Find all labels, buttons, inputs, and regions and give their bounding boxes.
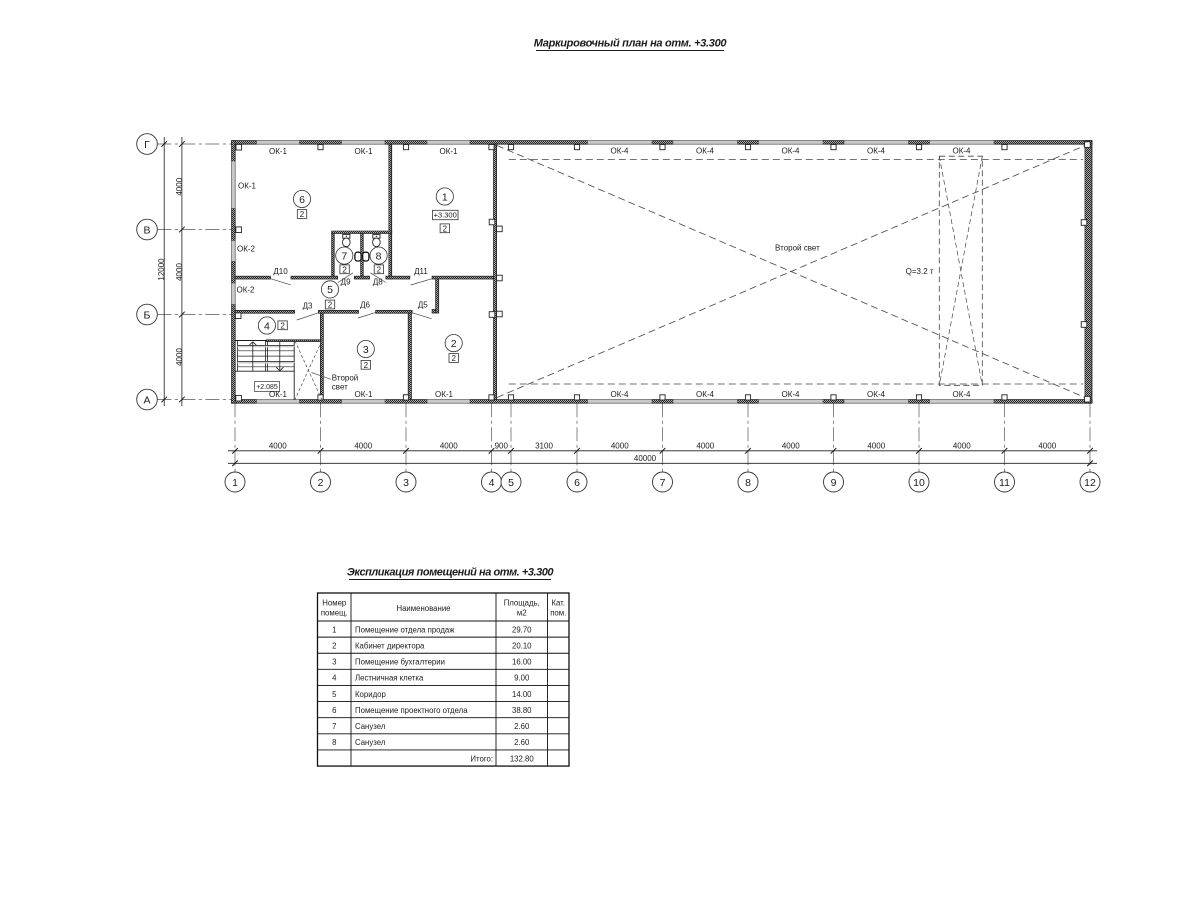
svg-text:6: 6: [299, 194, 305, 206]
svg-text:Наименование: Наименование: [396, 604, 450, 613]
svg-text:Д6: Д6: [360, 301, 370, 310]
svg-text:Итого:: Итого:: [470, 754, 493, 763]
svg-text:4: 4: [332, 674, 337, 683]
svg-text:2: 2: [280, 321, 285, 330]
svg-text:Б: Б: [144, 309, 151, 321]
svg-text:В: В: [143, 224, 150, 236]
svg-text:ОК-4: ОК-4: [782, 390, 801, 399]
svg-text:1: 1: [332, 625, 336, 634]
svg-text:Кат.: Кат.: [551, 599, 565, 608]
svg-text:Второй свет: Второй свет: [775, 244, 820, 253]
svg-text:2: 2: [300, 210, 305, 219]
svg-text:ОК-2: ОК-2: [237, 245, 256, 254]
svg-text:Площадь,: Площадь,: [504, 599, 540, 608]
svg-text:2: 2: [443, 224, 448, 233]
svg-text:4000: 4000: [782, 441, 800, 450]
svg-text:2: 2: [318, 477, 324, 489]
svg-text:4000: 4000: [440, 441, 458, 450]
svg-text:3: 3: [363, 344, 369, 356]
svg-text:Санузел: Санузел: [355, 722, 386, 731]
svg-text:Д8: Д8: [373, 278, 383, 287]
svg-text:ОК-1: ОК-1: [435, 390, 454, 399]
svg-text:2: 2: [328, 301, 333, 310]
svg-text:ОК-4: ОК-4: [867, 146, 886, 155]
svg-text:Кабинет директора: Кабинет директора: [355, 641, 425, 650]
svg-text:Коридор: Коридор: [355, 690, 386, 699]
svg-text:ОК-4: ОК-4: [611, 146, 630, 155]
svg-text:2: 2: [364, 361, 369, 370]
svg-text:5: 5: [508, 477, 514, 489]
svg-text:11: 11: [999, 477, 1010, 489]
svg-text:Д9: Д9: [341, 278, 351, 287]
svg-text:1: 1: [232, 477, 238, 489]
svg-text:2: 2: [377, 265, 382, 274]
svg-text:помещ.: помещ.: [321, 609, 348, 618]
svg-text:3: 3: [332, 658, 336, 667]
svg-text:ОК-4: ОК-4: [953, 146, 972, 155]
svg-text:2.60: 2.60: [514, 722, 530, 731]
svg-text:4000: 4000: [175, 348, 184, 366]
svg-text:29.70: 29.70: [512, 625, 532, 634]
svg-text:ОК-4: ОК-4: [696, 390, 715, 399]
svg-text:10: 10: [913, 477, 925, 489]
svg-text:4000: 4000: [953, 441, 971, 450]
svg-text:1: 1: [442, 191, 448, 203]
svg-text:Помещение бухгалтерии: Помещение бухгалтерии: [355, 658, 445, 667]
svg-text:А: А: [143, 394, 150, 406]
svg-text:ОК-1: ОК-1: [269, 147, 288, 156]
svg-text:4000: 4000: [611, 441, 629, 450]
svg-text:8: 8: [745, 477, 751, 489]
svg-text:12: 12: [1084, 477, 1096, 489]
svg-text:Второй: Второй: [332, 373, 358, 382]
svg-text:4000: 4000: [867, 441, 885, 450]
svg-text:Д11: Д11: [414, 267, 428, 276]
svg-text:ОК-4: ОК-4: [782, 146, 801, 155]
svg-text:7: 7: [660, 477, 666, 489]
svg-text:14.00: 14.00: [512, 690, 532, 699]
svg-text:Экспликация помещений на отм.: Экспликация помещений на отм. +3.300: [347, 567, 555, 579]
svg-text:ОК-4: ОК-4: [867, 390, 886, 399]
svg-text:3: 3: [403, 477, 409, 489]
svg-text:Маркировочный план на отм. +3.: Маркировочный план на отм. +3.300: [534, 38, 728, 50]
svg-text:5: 5: [332, 690, 337, 699]
svg-text:ОК-4: ОК-4: [953, 390, 972, 399]
svg-text:4: 4: [489, 477, 495, 489]
svg-text:8: 8: [332, 738, 336, 747]
svg-text:м2: м2: [517, 609, 527, 618]
svg-text:Санузел: Санузел: [355, 738, 386, 747]
svg-text:4000: 4000: [269, 441, 287, 450]
svg-text:свет: свет: [332, 383, 348, 392]
svg-text:38.80: 38.80: [512, 706, 532, 715]
svg-text:ОК-1: ОК-1: [238, 182, 257, 191]
svg-text:40000: 40000: [634, 454, 657, 463]
svg-text:4000: 4000: [1038, 441, 1056, 450]
svg-text:3100: 3100: [535, 441, 553, 450]
svg-text:ОК-1: ОК-1: [355, 390, 374, 399]
svg-text:16.00: 16.00: [512, 658, 532, 667]
svg-text:+3.300: +3.300: [434, 210, 457, 219]
svg-text:Лестничная клетка: Лестничная клетка: [355, 674, 424, 683]
svg-text:20.10: 20.10: [512, 641, 532, 650]
svg-text:9.00: 9.00: [514, 674, 530, 683]
svg-text:4000: 4000: [175, 263, 184, 281]
svg-text:2.60: 2.60: [514, 738, 530, 747]
svg-text:Помещение проектного отдела: Помещение проектного отдела: [355, 706, 468, 715]
svg-text:4000: 4000: [354, 441, 372, 450]
svg-text:5: 5: [327, 284, 333, 296]
svg-text:ОК-2: ОК-2: [237, 286, 256, 295]
svg-text:2: 2: [332, 641, 336, 650]
svg-text:Г: Г: [144, 139, 150, 151]
svg-text:ОК-1: ОК-1: [355, 147, 374, 156]
svg-text:2: 2: [451, 354, 456, 363]
svg-text:7: 7: [341, 250, 347, 262]
svg-text:ОК-4: ОК-4: [611, 390, 630, 399]
svg-text:ОК-4: ОК-4: [696, 146, 715, 155]
svg-text:4000: 4000: [696, 441, 714, 450]
svg-text:Номер: Номер: [322, 599, 347, 608]
svg-text:Q=3.2 т: Q=3.2 т: [906, 267, 934, 276]
svg-text:7: 7: [332, 722, 336, 731]
svg-text:пом.: пом.: [550, 609, 566, 618]
svg-text:ОК-1: ОК-1: [269, 390, 288, 399]
svg-text:4000: 4000: [175, 177, 184, 195]
svg-text:Д10: Д10: [273, 267, 288, 276]
svg-text:6: 6: [574, 477, 580, 489]
svg-text:8: 8: [376, 250, 382, 262]
svg-text:9: 9: [831, 477, 837, 489]
svg-text:6: 6: [332, 706, 336, 715]
svg-text:2: 2: [342, 265, 347, 274]
svg-text:ОК-1: ОК-1: [440, 147, 459, 156]
svg-text:12000: 12000: [157, 258, 166, 281]
svg-text:132.80: 132.80: [510, 754, 535, 763]
svg-text:2: 2: [451, 338, 457, 350]
svg-text:Помещение отдела продаж: Помещение отдела продаж: [355, 625, 455, 634]
svg-text:900: 900: [495, 441, 509, 450]
svg-text:4: 4: [264, 320, 270, 332]
svg-text:Д3: Д3: [303, 302, 313, 311]
svg-text:Д5: Д5: [418, 300, 428, 309]
